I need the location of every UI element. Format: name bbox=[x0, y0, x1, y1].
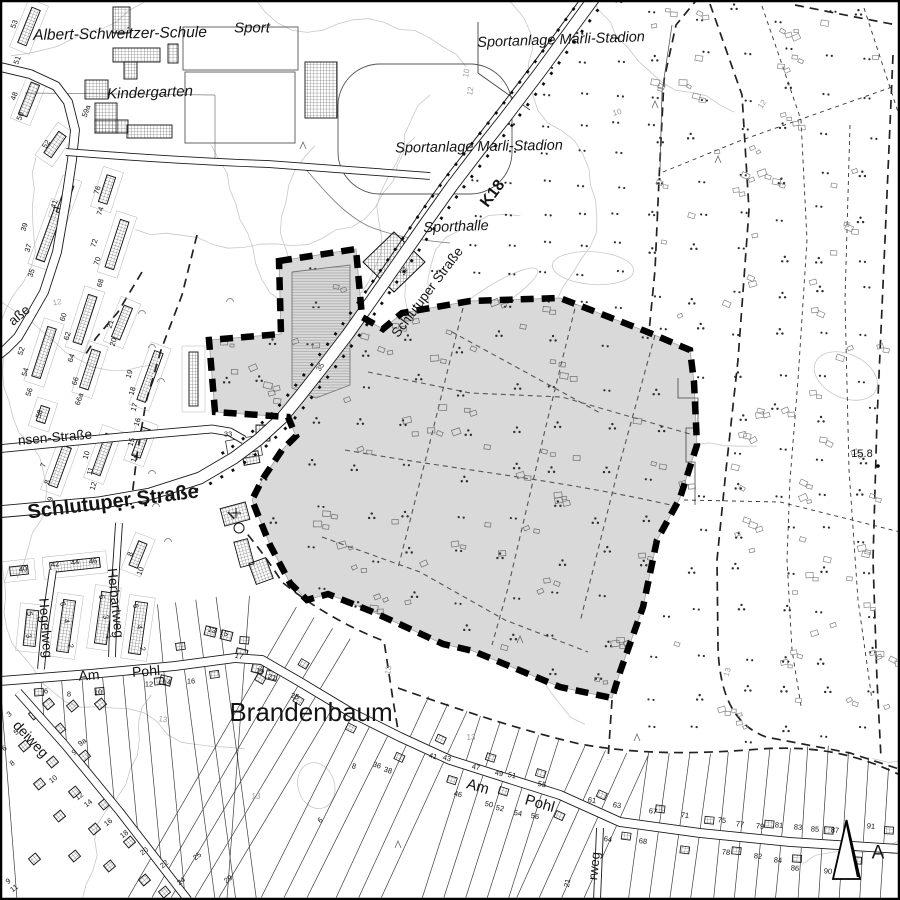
house-number: 52 bbox=[16, 346, 27, 357]
house-number: 64 bbox=[603, 834, 613, 844]
house-number: 8 bbox=[125, 551, 135, 558]
house-number: 44 bbox=[70, 557, 80, 567]
house-number: 85 bbox=[810, 824, 819, 834]
house-number: 56 bbox=[530, 811, 540, 821]
place-label: Sportanlage Marli-Stadion bbox=[477, 29, 645, 51]
house-number: 12 bbox=[145, 680, 153, 689]
place-label: A bbox=[872, 843, 885, 864]
place-label: Schlutuper Straße bbox=[26, 481, 200, 524]
house-number: 16 bbox=[187, 677, 195, 686]
place-label: Sportanlage Marli-Stadion bbox=[395, 138, 563, 157]
house-number: 72 bbox=[89, 238, 100, 249]
house-number: 82 bbox=[753, 851, 762, 861]
house-number: 55 bbox=[537, 779, 547, 789]
contour-label: 12 bbox=[756, 97, 769, 110]
contour-label: 10 bbox=[461, 67, 472, 78]
house-number: 84 bbox=[773, 855, 782, 865]
house-number: 52 bbox=[495, 803, 505, 814]
house-number: 56 bbox=[24, 387, 35, 398]
house-number: 39 bbox=[19, 222, 30, 233]
house-number: 2 bbox=[66, 643, 76, 649]
plan-area bbox=[209, 249, 697, 698]
house-number: 66a bbox=[73, 391, 86, 406]
house-number: 17 bbox=[129, 402, 140, 413]
contour-label: 12 bbox=[465, 85, 476, 96]
house-number: 21 bbox=[105, 319, 116, 330]
house-number: 68 bbox=[638, 836, 648, 846]
house-number: 16 bbox=[102, 816, 114, 828]
contour-label: 13 bbox=[467, 733, 476, 742]
house-number: 77 bbox=[735, 819, 744, 829]
house-number: 6 bbox=[316, 815, 325, 825]
house-number: 46 bbox=[88, 556, 98, 566]
house-number: 74 bbox=[95, 206, 106, 217]
house-number: 2 bbox=[138, 646, 148, 652]
place-label: Brandenbaum bbox=[229, 697, 392, 727]
house-number: 41 bbox=[428, 751, 438, 762]
house-number: 54 bbox=[20, 367, 31, 378]
house-number: 42 bbox=[50, 559, 60, 569]
house-number: 48 bbox=[8, 91, 19, 102]
house-number: 25 bbox=[191, 850, 203, 862]
house-number: 68 bbox=[95, 278, 106, 289]
house-number: 14 bbox=[163, 678, 171, 687]
house-number: 81 bbox=[774, 820, 783, 830]
house-number: 3 bbox=[5, 709, 14, 719]
house-number: 54 bbox=[513, 808, 523, 818]
house-number: 64 bbox=[66, 353, 77, 364]
place-label: Pohl bbox=[131, 662, 160, 680]
house-number: 35 bbox=[26, 268, 37, 279]
house-number: 83 bbox=[793, 822, 802, 832]
house-number: 50 bbox=[484, 799, 494, 810]
house-number: 33 bbox=[224, 430, 232, 439]
house-number: 71 bbox=[680, 810, 689, 820]
house-number: 63 bbox=[612, 800, 622, 810]
house-number: 6 bbox=[44, 687, 48, 696]
house-number: 90 bbox=[823, 866, 832, 876]
contour-label: 13 bbox=[383, 664, 394, 675]
place-label: K18 bbox=[477, 177, 508, 211]
house-number: 79 bbox=[755, 821, 764, 831]
house-number: 75 bbox=[717, 815, 726, 825]
house-number: 67 bbox=[648, 806, 658, 816]
house-number: 51 bbox=[11, 55, 22, 66]
house-number: 59a bbox=[80, 103, 93, 119]
place-label: rweg bbox=[585, 851, 603, 881]
topographic-plan-map: 535148505259a413937357674727068606264666… bbox=[0, 0, 900, 900]
place-label: Sporthalle bbox=[423, 218, 489, 236]
house-number: 70 bbox=[92, 256, 103, 267]
house-number: 62 bbox=[62, 331, 73, 342]
contour-label: 12 bbox=[52, 297, 63, 308]
contour-label: 13 bbox=[722, 666, 733, 677]
house-number: 7 bbox=[38, 462, 48, 469]
house-number: 10 bbox=[94, 688, 102, 697]
spot-elevation-value: 15.8 bbox=[851, 448, 872, 460]
house-number: 53 bbox=[8, 19, 19, 30]
contour-label: 13 bbox=[252, 792, 261, 801]
place-label: Albert-Schweitzer-Schule bbox=[32, 24, 207, 44]
place-label: Sport bbox=[234, 19, 271, 36]
house-number: 19 bbox=[124, 369, 135, 380]
house-number: 16 bbox=[132, 417, 143, 428]
house-number: 66 bbox=[70, 376, 81, 387]
house-number: 36 bbox=[372, 760, 383, 771]
house-number: 60 bbox=[58, 312, 69, 323]
house-number: 8 bbox=[8, 758, 17, 768]
house-number: 40 bbox=[18, 564, 28, 574]
house-number: 91 bbox=[866, 821, 875, 831]
house-number: 46 bbox=[453, 789, 463, 800]
house-number: 86 bbox=[790, 863, 799, 873]
map-viewport: 535148505259a413937357674727068606264666… bbox=[0, 0, 900, 900]
place-label: Am bbox=[78, 666, 100, 683]
house-number: 38 bbox=[383, 765, 394, 776]
house-number: 78 bbox=[721, 847, 730, 857]
house-number: 14 bbox=[82, 797, 94, 809]
place-label: Am bbox=[465, 775, 491, 798]
house-number: 19 bbox=[255, 666, 265, 677]
contour-label: 13 bbox=[158, 714, 169, 724]
place-label: Kindergarten bbox=[107, 83, 193, 103]
house-number: 18 bbox=[127, 386, 138, 397]
contour-label: 10 bbox=[612, 107, 623, 118]
house-number: 10 bbox=[47, 773, 59, 785]
house-number: 21 bbox=[562, 878, 572, 888]
house-number: 61 bbox=[587, 795, 597, 805]
house-number: 8 bbox=[67, 690, 71, 699]
house-number: 87 bbox=[830, 825, 839, 835]
